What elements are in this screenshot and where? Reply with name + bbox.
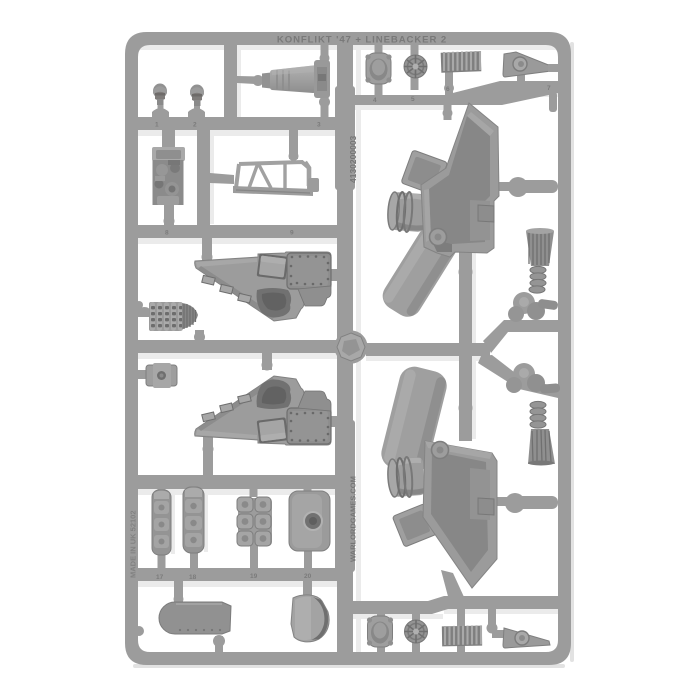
svg-text:WARLORDGAMES.COM: WARLORDGAMES.COM: [349, 476, 358, 562]
svg-text:2: 2: [193, 122, 197, 129]
svg-text:KONFLIKT '47 + LINEBACKER 2: KONFLIKT '47 + LINEBACKER 2: [277, 35, 447, 46]
svg-text:7: 7: [547, 85, 551, 92]
svg-text:5: 5: [411, 96, 415, 103]
svg-text:20: 20: [304, 573, 312, 580]
svg-text:MADE IN UK 52102: MADE IN UK 52102: [129, 510, 138, 578]
svg-text:4: 4: [373, 97, 377, 104]
svg-text:19: 19: [250, 573, 258, 580]
svg-text:18: 18: [189, 574, 197, 581]
svg-text:3: 3: [317, 122, 321, 129]
svg-text:4130200003: 4130200003: [348, 135, 358, 183]
svg-text:6: 6: [446, 86, 450, 93]
svg-text:17: 17: [156, 574, 164, 581]
svg-text:9: 9: [290, 230, 294, 237]
svg-text:1: 1: [155, 122, 159, 129]
svg-text:8: 8: [165, 230, 169, 237]
